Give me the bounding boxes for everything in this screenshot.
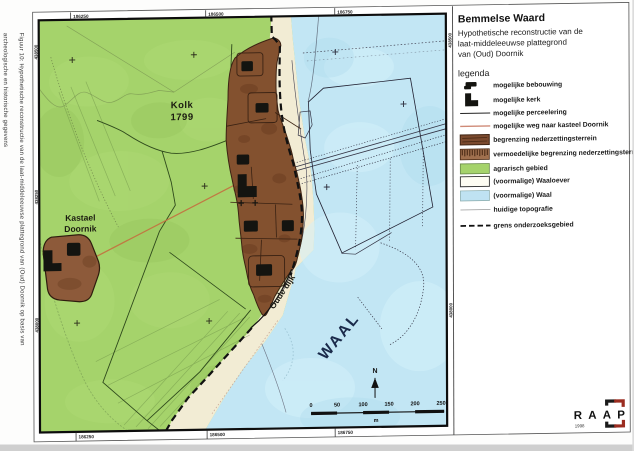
svg-text:Doornik: Doornik xyxy=(64,223,96,234)
svg-text:m: m xyxy=(374,418,379,424)
svg-text:mogelijke perceelering: mogelijke perceelering xyxy=(493,109,567,117)
svg-text:legenda: legenda xyxy=(458,68,489,79)
svg-text:186500: 186500 xyxy=(210,432,226,437)
svg-text:186250: 186250 xyxy=(73,14,89,19)
svg-text:438500: 438500 xyxy=(33,44,38,59)
svg-text:50: 50 xyxy=(334,403,340,409)
svg-text:mogelijke kerk: mogelijke kerk xyxy=(493,96,540,104)
svg-text:huidige topografie: huidige topografie xyxy=(493,206,553,214)
svg-text:(voormalige) Waaloever: (voormalige) Waaloever xyxy=(493,177,570,185)
svg-text:438250: 438250 xyxy=(34,189,39,204)
svg-text:250: 250 xyxy=(436,401,445,407)
svg-text:laat-middeleeuwse plattegrond: laat-middeleeuwse plattegrond xyxy=(458,38,567,49)
svg-text:N: N xyxy=(372,368,377,375)
svg-text:186750: 186750 xyxy=(338,430,354,435)
svg-text:1998: 1998 xyxy=(575,423,585,428)
svg-text:200: 200 xyxy=(410,401,419,407)
svg-text:grens onderzoeksgebied: grens onderzoeksgebied xyxy=(494,221,574,229)
svg-text:van (Oud) Doornik: van (Oud) Doornik xyxy=(458,49,524,59)
svg-text:438500: 438500 xyxy=(447,32,452,47)
svg-text:100: 100 xyxy=(358,402,367,408)
svg-text:archeologische en historische: archeologische en historische gegevens xyxy=(2,33,8,147)
svg-text:agrarisch gebied: agrarisch gebied xyxy=(493,165,547,173)
svg-text:0: 0 xyxy=(310,403,313,409)
svg-text:438000: 438000 xyxy=(448,302,453,317)
svg-text:Kolk: Kolk xyxy=(171,100,194,111)
svg-text:1799: 1799 xyxy=(170,112,193,123)
svg-text:Kastael: Kastael xyxy=(65,212,95,222)
svg-text:186500: 186500 xyxy=(208,12,224,17)
svg-text:mogelijke bebouwing: mogelijke bebouwing xyxy=(493,81,562,89)
svg-text:186250: 186250 xyxy=(79,434,95,439)
svg-text:186750: 186750 xyxy=(337,9,353,14)
svg-text:150: 150 xyxy=(384,402,393,408)
svg-text:438000: 438000 xyxy=(34,317,39,332)
svg-text:Bemmelse Waard: Bemmelse Waard xyxy=(458,12,545,25)
svg-text:(voormalige) Waal: (voormalige) Waal xyxy=(493,192,551,200)
svg-text:Figuur 10: Hypothetische recon: Figuur 10: Hypothetische reconstructie v… xyxy=(18,33,25,346)
